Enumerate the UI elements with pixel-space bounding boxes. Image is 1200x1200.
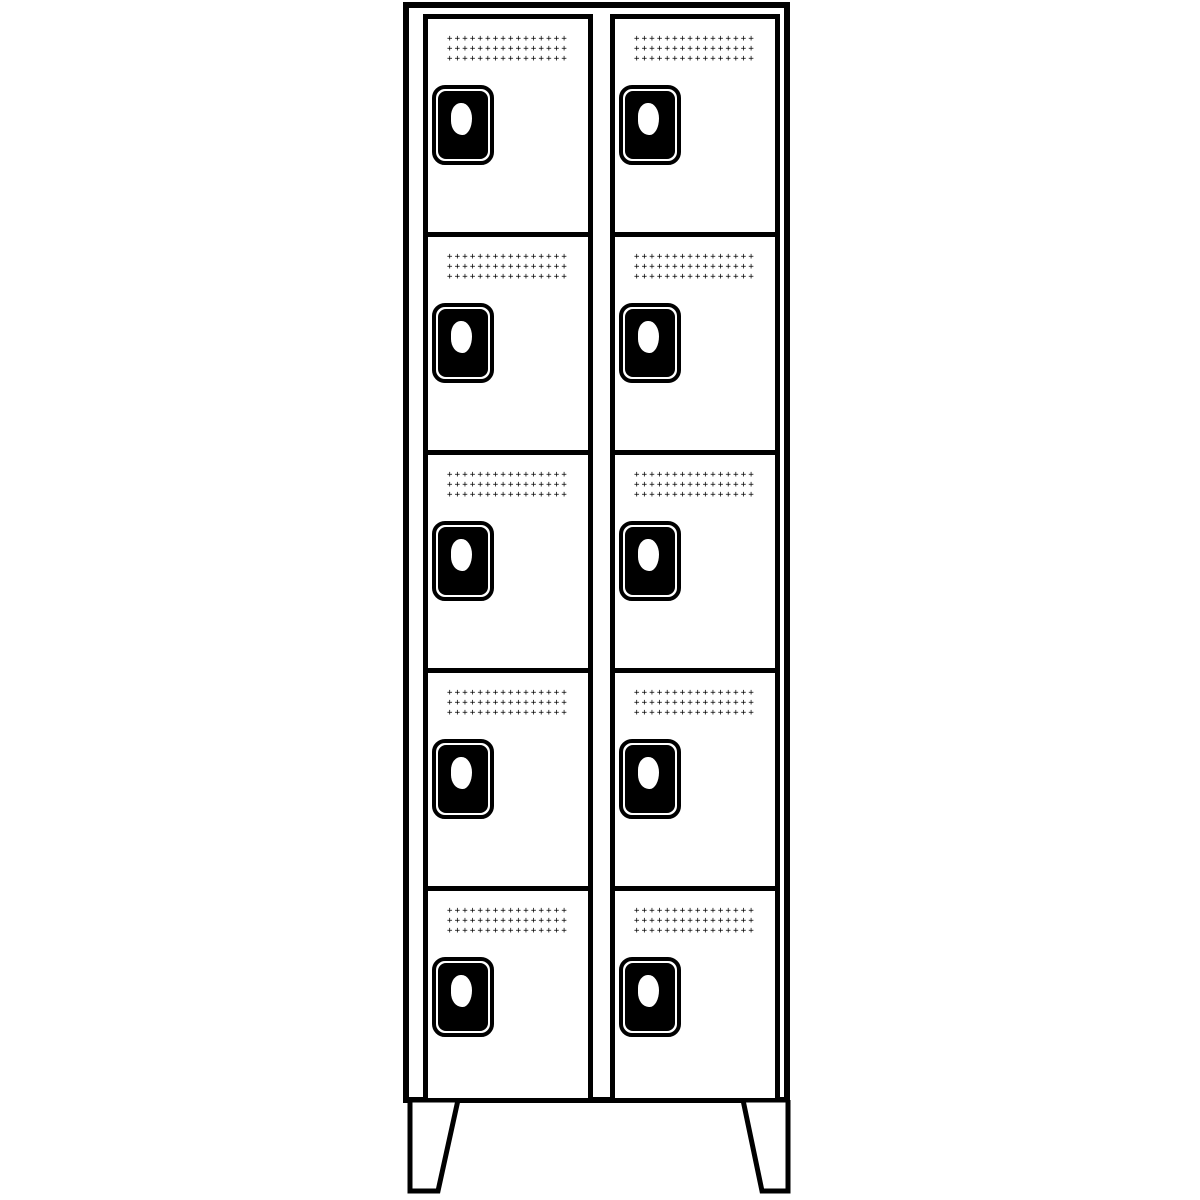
vent-row: ++++++++++++++++ (634, 480, 756, 490)
keyhole-icon (451, 103, 472, 135)
vent-row: ++++++++++++++++ (447, 54, 569, 64)
locker-door: ++++++++++++++++ ++++++++++++++++ ++++++… (610, 14, 780, 237)
vent-row: ++++++++++++++++ (634, 490, 756, 500)
vent-row: ++++++++++++++++ (447, 470, 569, 480)
cylinder-lock-icon (619, 303, 681, 383)
vent-row: ++++++++++++++++ (447, 906, 569, 916)
locker-door: ++++++++++++++++ ++++++++++++++++ ++++++… (423, 450, 593, 673)
cylinder-lock-icon (619, 957, 681, 1037)
vent-row: ++++++++++++++++ (634, 698, 756, 708)
keyhole-icon (638, 539, 659, 571)
vent-row: ++++++++++++++++ (634, 688, 756, 698)
locker-cabinet-drawing: ++++++++++++++++ ++++++++++++++++ ++++++… (0, 0, 1200, 1200)
vent-row: ++++++++++++++++ (447, 926, 569, 936)
locker-door: ++++++++++++++++ ++++++++++++++++ ++++++… (423, 14, 593, 237)
cylinder-lock-icon (432, 521, 494, 601)
locker-door: ++++++++++++++++ ++++++++++++++++ ++++++… (423, 232, 593, 455)
left-foot (410, 1100, 458, 1191)
vent-row: ++++++++++++++++ (634, 54, 756, 64)
vent-row: ++++++++++++++++ (634, 262, 756, 272)
ventilation-grille-icon: ++++++++++++++++ ++++++++++++++++ ++++++… (634, 252, 756, 282)
right-foot (743, 1100, 788, 1191)
ventilation-grille-icon: ++++++++++++++++ ++++++++++++++++ ++++++… (634, 470, 756, 500)
keyhole-icon (638, 757, 659, 789)
vent-row: ++++++++++++++++ (634, 916, 756, 926)
vent-row: ++++++++++++++++ (634, 252, 756, 262)
vent-row: ++++++++++++++++ (447, 272, 569, 282)
vent-row: ++++++++++++++++ (447, 252, 569, 262)
vent-row: ++++++++++++++++ (634, 906, 756, 916)
locker-door: ++++++++++++++++ ++++++++++++++++ ++++++… (423, 886, 593, 1103)
ventilation-grille-icon: ++++++++++++++++ ++++++++++++++++ ++++++… (447, 688, 569, 718)
vent-row: ++++++++++++++++ (634, 44, 756, 54)
vent-row: ++++++++++++++++ (634, 470, 756, 480)
keyhole-icon (638, 103, 659, 135)
ventilation-grille-icon: ++++++++++++++++ ++++++++++++++++ ++++++… (447, 252, 569, 282)
cylinder-lock-icon (619, 739, 681, 819)
cylinder-lock-icon (432, 739, 494, 819)
vent-row: ++++++++++++++++ (447, 34, 569, 44)
ventilation-grille-icon: ++++++++++++++++ ++++++++++++++++ ++++++… (447, 34, 569, 64)
ventilation-grille-icon: ++++++++++++++++ ++++++++++++++++ ++++++… (447, 470, 569, 500)
keyhole-icon (638, 321, 659, 353)
vent-row: ++++++++++++++++ (447, 708, 569, 718)
keyhole-icon (451, 757, 472, 789)
vent-row: ++++++++++++++++ (634, 34, 756, 44)
cylinder-lock-icon (432, 957, 494, 1037)
vent-row: ++++++++++++++++ (447, 480, 569, 490)
ventilation-grille-icon: ++++++++++++++++ ++++++++++++++++ ++++++… (634, 34, 756, 64)
locker-door: ++++++++++++++++ ++++++++++++++++ ++++++… (610, 450, 780, 673)
vent-row: ++++++++++++++++ (634, 926, 756, 936)
locker-door: ++++++++++++++++ ++++++++++++++++ ++++++… (610, 886, 780, 1103)
keyhole-icon (638, 975, 659, 1007)
cabinet-feet (402, 1100, 792, 1200)
vent-row: ++++++++++++++++ (634, 272, 756, 282)
vent-row: ++++++++++++++++ (447, 262, 569, 272)
keyhole-icon (451, 321, 472, 353)
ventilation-grille-icon: ++++++++++++++++ ++++++++++++++++ ++++++… (447, 906, 569, 936)
vent-row: ++++++++++++++++ (447, 44, 569, 54)
ventilation-grille-icon: ++++++++++++++++ ++++++++++++++++ ++++++… (634, 906, 756, 936)
cylinder-lock-icon (619, 85, 681, 165)
vent-row: ++++++++++++++++ (634, 708, 756, 718)
keyhole-icon (451, 539, 472, 571)
vent-row: ++++++++++++++++ (447, 916, 569, 926)
keyhole-icon (451, 975, 472, 1007)
cylinder-lock-icon (432, 303, 494, 383)
ventilation-grille-icon: ++++++++++++++++ ++++++++++++++++ ++++++… (634, 688, 756, 718)
vent-row: ++++++++++++++++ (447, 698, 569, 708)
vent-row: ++++++++++++++++ (447, 688, 569, 698)
locker-door: ++++++++++++++++ ++++++++++++++++ ++++++… (610, 232, 780, 455)
cylinder-lock-icon (619, 521, 681, 601)
locker-door: ++++++++++++++++ ++++++++++++++++ ++++++… (423, 668, 593, 891)
locker-door: ++++++++++++++++ ++++++++++++++++ ++++++… (610, 668, 780, 891)
cylinder-lock-icon (432, 85, 494, 165)
vent-row: ++++++++++++++++ (447, 490, 569, 500)
